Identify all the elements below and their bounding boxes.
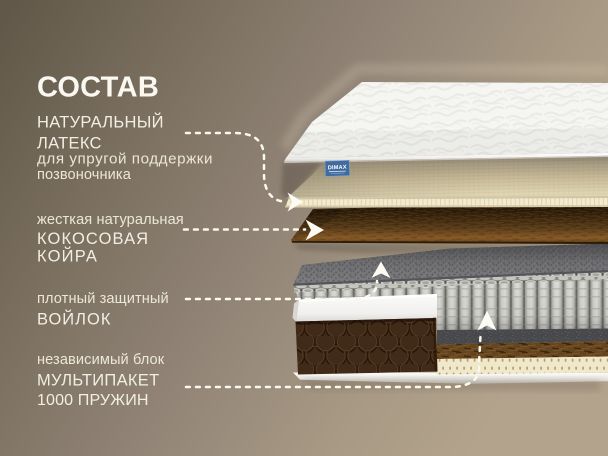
svg-text:НАТУРАЛЬНЫЙ: НАТУРАЛЬНЫЙ: [37, 113, 164, 132]
svg-text:DIMAX: DIMAX: [328, 165, 347, 172]
svg-text:независимый блок: независимый блок: [37, 352, 165, 368]
svg-text:СОСТАВ: СОСТАВ: [37, 72, 159, 104]
svg-text:для упругой поддержки: для упругой поддержки: [37, 151, 213, 168]
svg-text:МУЛЬТИПАКЕТ: МУЛЬТИПАКЕТ: [37, 372, 159, 390]
svg-text:позвоночника: позвоночника: [37, 167, 132, 183]
svg-text:жесткая натуральная: жесткая натуральная: [37, 212, 184, 228]
svg-text:ВОЙЛОК: ВОЙЛОК: [37, 310, 111, 329]
svg-text:1000 ПРУЖИН: 1000 ПРУЖИН: [37, 391, 149, 409]
svg-text:КОКОСОВАЯ: КОКОСОВАЯ: [37, 230, 149, 248]
svg-text:КОЙРА: КОЙРА: [37, 247, 98, 266]
svg-text:плотный защитный: плотный защитный: [37, 291, 169, 307]
